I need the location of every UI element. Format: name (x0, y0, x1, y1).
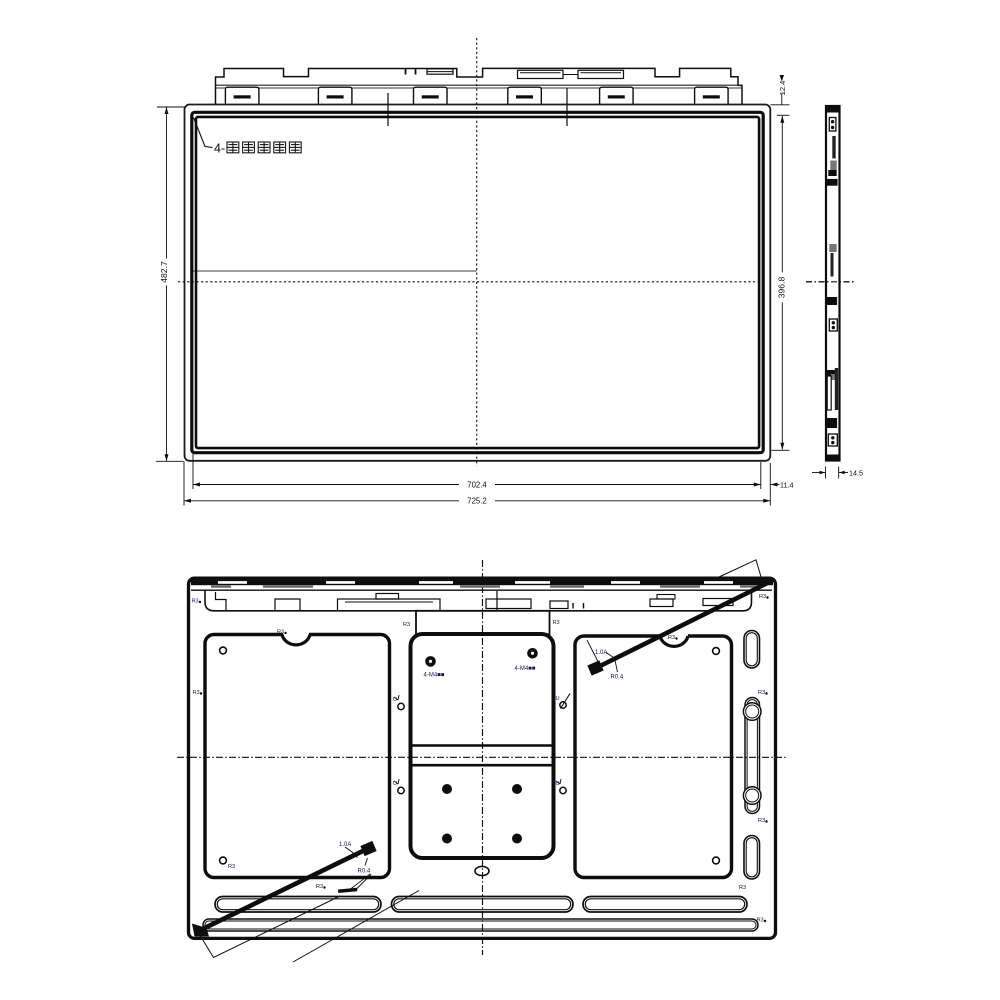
svg-text:1.0A: 1.0A (339, 842, 351, 848)
svg-text:4-: 4- (214, 142, 225, 156)
svg-text:U: U (393, 781, 397, 787)
svg-text:R3: R3 (758, 690, 765, 696)
svg-text:R3: R3 (758, 818, 765, 824)
svg-text:R0.4: R0.4 (358, 869, 371, 875)
svg-text:12.4: 12.4 (778, 81, 787, 96)
svg-text:R3: R3 (228, 864, 235, 870)
svg-text:4-M4■■: 4-M4■■ (515, 666, 536, 672)
svg-text:1.0A: 1.0A (595, 650, 607, 656)
svg-text:4-M4■■: 4-M4■■ (424, 673, 445, 679)
svg-text:R3: R3 (192, 599, 199, 605)
svg-text:R3: R3 (757, 918, 764, 924)
svg-text:R3: R3 (193, 690, 200, 696)
svg-text:R3: R3 (759, 594, 766, 600)
svg-text:396.8: 396.8 (776, 277, 786, 299)
svg-text:482.7: 482.7 (159, 261, 169, 283)
svg-text:R3: R3 (403, 622, 410, 628)
svg-text:R3: R3 (739, 885, 746, 891)
svg-text:14.5: 14.5 (849, 468, 863, 477)
svg-text:U: U (393, 697, 397, 703)
svg-text:R3: R3 (277, 630, 284, 636)
svg-text:R3: R3 (668, 635, 675, 641)
svg-text:11.4: 11.4 (780, 480, 793, 489)
svg-text:R0.4: R0.4 (611, 675, 624, 681)
svg-text:R3: R3 (553, 620, 560, 626)
svg-text:R3: R3 (316, 884, 323, 890)
svg-text:U: U (556, 696, 560, 702)
svg-text:725.2: 725.2 (467, 497, 487, 506)
svg-text:U: U (556, 781, 560, 787)
svg-text:702.4: 702.4 (467, 480, 487, 489)
